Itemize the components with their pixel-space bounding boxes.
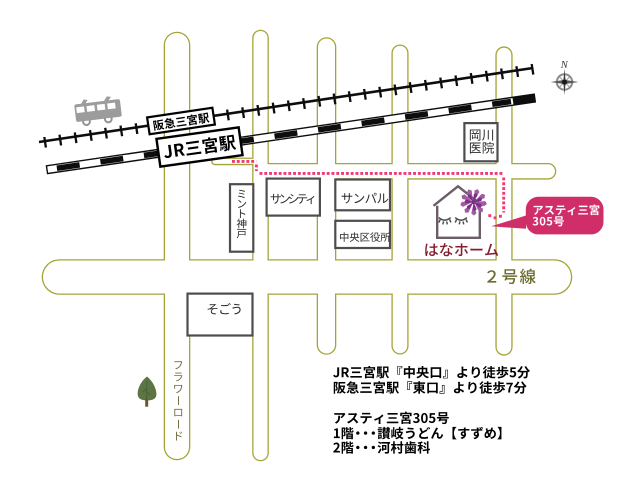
svg-text:N: N <box>560 60 569 71</box>
